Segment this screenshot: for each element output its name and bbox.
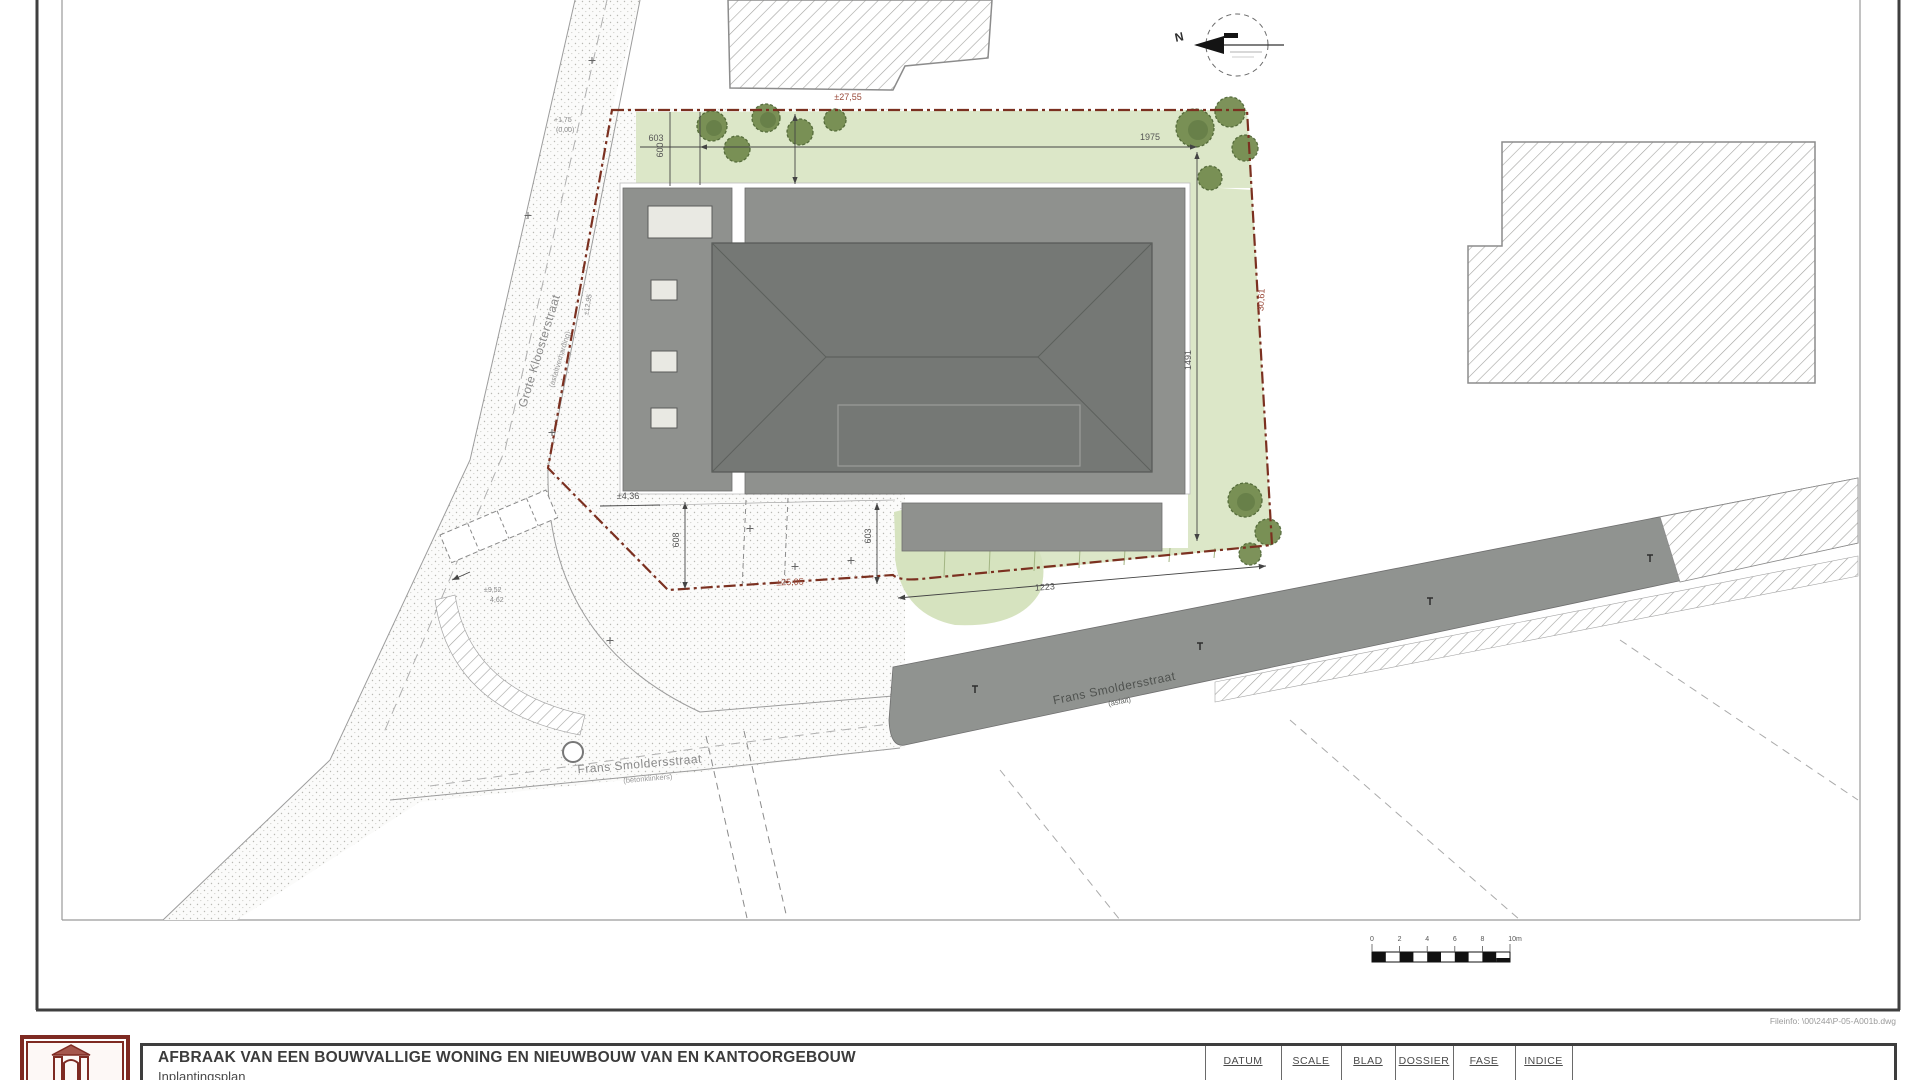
drawing-subtitle: Inplantingsplan (158, 1069, 245, 1080)
dimension-label: 603 (863, 528, 873, 543)
dimension-label: 603 (648, 133, 663, 143)
titleblock-header-datum: DATUM (1205, 1055, 1281, 1067)
scale-tick-label: 8 (1480, 936, 1484, 943)
north-label: N (1173, 29, 1184, 44)
rooflight (648, 206, 712, 238)
site-plan-canvas: ±27,55 1975 603 600 1491 30,61 ±12,95 ±2… (0, 0, 1920, 1080)
existing-building-north (728, 0, 992, 90)
titleblock-header-fase: FASE (1453, 1055, 1515, 1067)
file-reference: Fileinfo: \00\244\P-05-A001b.dwg (1770, 1016, 1896, 1026)
level-label: (0,00) (556, 127, 574, 134)
dimension-label: ±4,36 (617, 491, 639, 501)
scale-tick-label: 4 (1425, 936, 1429, 943)
architect-logo (20, 1035, 130, 1080)
plan-sheet: ±27,55 1975 603 600 1491 30,61 ±12,95 ±2… (0, 0, 1920, 1080)
scale-tick-label: 2 (1398, 936, 1402, 943)
dimension-label: 1975 (1140, 132, 1160, 142)
existing-building-east (1468, 142, 1815, 383)
dimension-label: 30,61 (1255, 288, 1266, 311)
carport-annex (902, 503, 1162, 551)
scale-tick-label: 6 (1453, 936, 1457, 943)
dimension-label: 1223 (1034, 581, 1055, 592)
dimension-label: ±25,05 (776, 577, 804, 588)
level-label: +1,75 (554, 117, 572, 124)
scale-tick-label: 10m (1508, 936, 1522, 943)
titleblock-divider (1572, 1046, 1573, 1080)
dimension-label: 1491 (1183, 350, 1193, 370)
hip-roof (712, 243, 1152, 472)
titleblock-header-blad: BLAD (1341, 1055, 1395, 1067)
dimension-label: 608 (671, 532, 681, 547)
scale-tick-label: 0 (1370, 936, 1374, 943)
north-arrow: N (1173, 14, 1284, 76)
titleblock-header-indice: INDICE (1515, 1055, 1572, 1067)
dimension-label: ±27,55 (834, 92, 861, 102)
scale-bar: 0 2 4 6 8 10m (1370, 936, 1522, 962)
dimension-label: 600 (655, 142, 665, 157)
project-title: AFBRAAK VAN EEN BOUWVALLIGE WONING EN NI… (158, 1049, 856, 1067)
dimension-label: 4,62 (490, 597, 504, 604)
dimension-label: ±9,52 (484, 587, 502, 594)
titleblock-header-dossier: DOSSIER (1395, 1055, 1453, 1067)
titleblock-header-scale: SCALE (1281, 1055, 1341, 1067)
manhole-symbol (563, 742, 583, 762)
